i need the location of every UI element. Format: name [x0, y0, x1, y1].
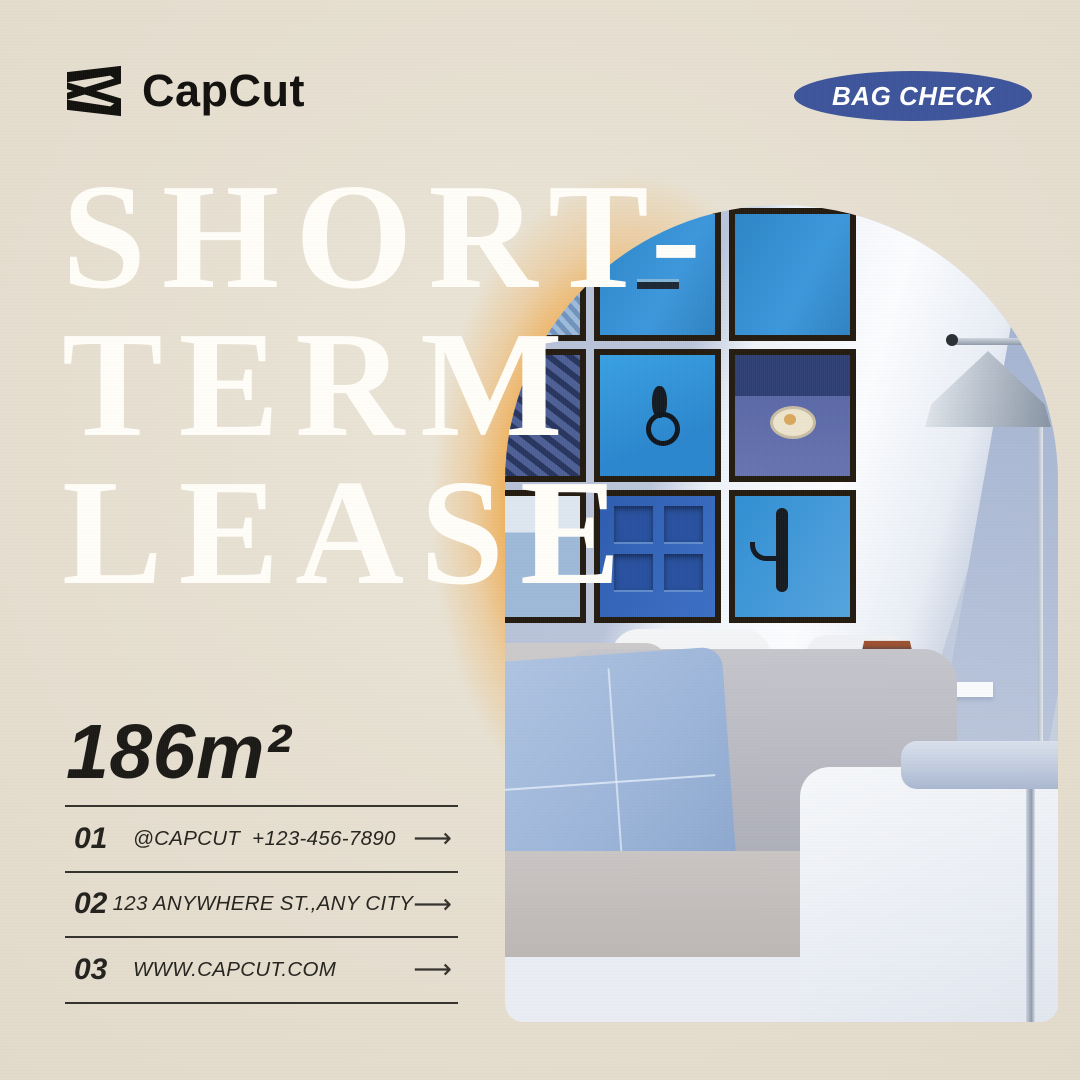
- headline-line-2: TERM: [62, 310, 717, 458]
- contact-handle-phone: @CAPCUT +123-456-7890: [133, 827, 413, 851]
- contact-row: 03 WWW.CAPCUT.COM ⟶: [65, 936, 458, 1002]
- poster-canvas: CapCut BAG CHECK: [0, 0, 1080, 1080]
- floor-lamp-cap: [946, 334, 958, 346]
- c-table-leg: [1026, 789, 1035, 1022]
- contact-list: 01 @CAPCUT +123-456-7890 ⟶ 02 123 ANYWHE…: [65, 805, 458, 1004]
- sofa-armrest: [800, 767, 1058, 1022]
- row-number: 01: [74, 822, 133, 856]
- contact-address: 123 ANYWHERE ST.,ANY CITY: [113, 892, 414, 916]
- contact-row: 02 123 ANYWHERE ST.,ANY CITY ⟶: [65, 871, 458, 937]
- c-table-top: [901, 741, 1058, 789]
- arrow-right-icon: ⟶: [413, 823, 452, 854]
- area-value: 186m²: [66, 708, 291, 797]
- row-number: 02: [74, 887, 113, 921]
- door-emblem: [770, 406, 816, 439]
- headline: SHORT- TERM LEASE: [62, 162, 717, 606]
- badge-label: BAG CHECK: [832, 81, 994, 112]
- door-photo-cell: [729, 208, 856, 341]
- door-photo-cell: [729, 490, 856, 623]
- row-number: 03: [74, 953, 133, 987]
- headline-line-1: SHORT-: [62, 162, 717, 310]
- capcut-logo-icon: [62, 64, 126, 118]
- door-handle: [776, 508, 788, 592]
- door-photo-cell: [729, 349, 856, 482]
- bag-check-badge: BAG CHECK: [794, 71, 1032, 121]
- arrow-right-icon: ⟶: [413, 889, 452, 920]
- contact-row: 01 @CAPCUT +123-456-7890 ⟶: [65, 805, 458, 871]
- brand-name: CapCut: [142, 65, 305, 117]
- arrow-right-icon: ⟶: [413, 954, 452, 985]
- headline-line-3: LEASE: [62, 458, 717, 606]
- contact-website: WWW.CAPCUT.COM: [133, 958, 413, 982]
- capcut-logo: CapCut: [62, 64, 305, 118]
- floor-lamp-arm: [953, 338, 1043, 345]
